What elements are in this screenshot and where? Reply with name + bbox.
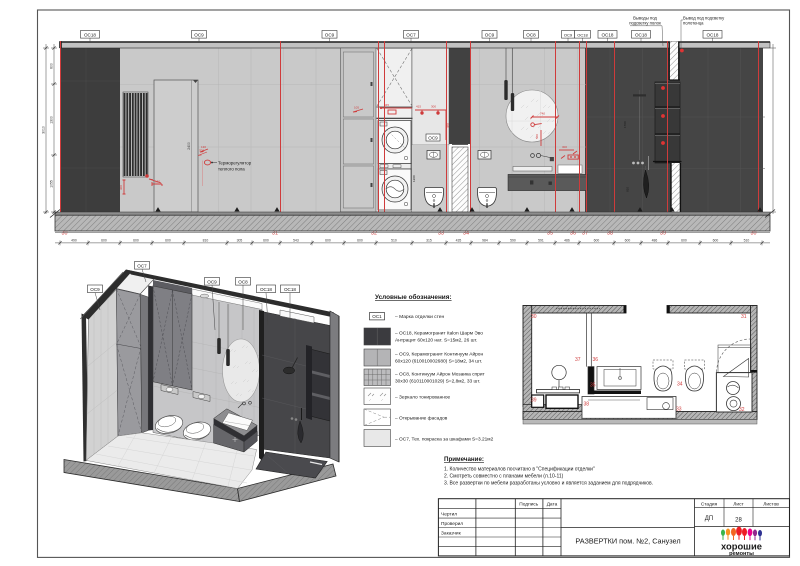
svg-text:300: 300: [431, 105, 436, 109]
svg-text:ОС18: ОС18: [284, 287, 296, 292]
svg-text:39: 39: [531, 398, 537, 404]
svg-text:810: 810: [203, 238, 209, 242]
svg-text:1300: 1300: [50, 116, 54, 124]
svg-text:600: 600: [50, 63, 54, 69]
svg-text:30х30 (610110001029) S=2,8м2,: 30х30 (610110001029) S=2,8м2, 33 шт.: [395, 379, 480, 385]
svg-text:600: 600: [133, 238, 139, 242]
svg-text:105: 105: [354, 106, 359, 110]
svg-text:ОС18: ОС18: [635, 32, 647, 37]
svg-text:ОС7: ОС7: [406, 32, 416, 37]
svg-text:подсветку полок: подсветку полок: [629, 20, 661, 25]
svg-text:ОС18: ОС18: [706, 32, 718, 37]
svg-text:910: 910: [626, 187, 630, 192]
svg-text:Подпись: Подпись: [519, 502, 538, 508]
svg-text:33: 33: [438, 231, 444, 237]
svg-text:300: 300: [562, 145, 567, 149]
svg-text:ОС18: ОС18: [260, 287, 272, 292]
svg-text:ОС9: ОС9: [207, 279, 217, 284]
svg-text:60х120 (610010002680) S=18м2,: 60х120 (610010002680) S=18м2, 34 шт.: [395, 359, 482, 365]
svg-text:ДП: ДП: [705, 516, 713, 522]
svg-text:– Открывание фасадов: – Открывание фасадов: [395, 416, 448, 422]
svg-text:Заказчик: Заказчик: [441, 531, 462, 537]
svg-text:28: 28: [735, 518, 742, 524]
svg-text:– ОС9, Керамогранит Континуум: – ОС9, Керамогранит Континуум Айрон: [395, 351, 483, 358]
svg-text:490: 490: [71, 238, 77, 242]
svg-text:ОС8: ОС8: [526, 32, 536, 37]
svg-text:ОС18: ОС18: [601, 32, 613, 37]
svg-text:31: 31: [741, 314, 747, 320]
svg-text:39: 39: [660, 231, 666, 237]
svg-text:315: 315: [426, 238, 432, 242]
svg-text:31: 31: [272, 231, 278, 237]
svg-text:543: 543: [293, 238, 299, 242]
svg-text:Терморегулятор: Терморегулятор: [218, 160, 252, 165]
svg-text:Лист: Лист: [733, 502, 744, 508]
svg-text:38: 38: [607, 231, 613, 237]
svg-text:3010: 3010: [42, 126, 46, 134]
svg-text:ОС18: ОС18: [84, 32, 96, 37]
svg-text:– Зеркало тонированное: – Зеркало тонированное: [395, 395, 451, 401]
svg-text:1200: 1200: [412, 175, 416, 182]
svg-text:37: 37: [575, 357, 581, 363]
svg-text:35: 35: [547, 231, 553, 237]
svg-text:590: 590: [510, 238, 516, 242]
svg-text:486: 486: [652, 238, 658, 242]
svg-text:600: 600: [357, 238, 363, 242]
svg-text:600: 600: [325, 238, 331, 242]
svg-text:600: 600: [263, 238, 269, 242]
svg-text:32: 32: [739, 407, 745, 413]
svg-text:Примечание:: Примечание:: [444, 456, 484, 463]
svg-text:740: 740: [540, 112, 545, 116]
svg-text:32: 32: [371, 231, 377, 237]
svg-text:130: 130: [201, 145, 206, 149]
svg-text:– ОС8, Континуум Айрон Мозаика: – ОС8, Континуум Айрон Мозаика сприт: [395, 371, 485, 378]
svg-text:– Марка отделки стен: – Марка отделки стен: [395, 314, 445, 320]
svg-text:Условные обозначения:: Условные обозначения:: [375, 293, 452, 301]
svg-text:Антрацит 60х120 нат. S=15м2, 2: Антрацит 60х120 нат. S=15м2, 26 шт.: [395, 338, 477, 344]
svg-text:ОС9: ОС9: [325, 32, 335, 37]
svg-text:2. Смотреть совместно с планам: 2. Смотреть совместно с планами мебели (…: [444, 474, 564, 480]
svg-text:510: 510: [744, 238, 750, 242]
svg-text:36: 36: [593, 357, 599, 363]
svg-text:3. Все развертки по мебели раз: 3. Все развертки по мебели разработаны у…: [444, 481, 653, 487]
svg-text:– ОС18, Керамогранит Italon Ша: – ОС18, Керамогранит Italon Шарм Эво: [395, 331, 483, 337]
svg-text:305: 305: [237, 238, 243, 242]
svg-text:30: 30: [62, 231, 68, 237]
svg-text:теплого пола: теплого пола: [218, 166, 245, 171]
svg-text:34: 34: [463, 231, 469, 237]
svg-text:ремонты: ремонты: [729, 551, 754, 557]
svg-text:1. Количество материалов посчи: 1. Количество материалов посчитано в "Сп…: [444, 467, 595, 473]
svg-text:ОС1: ОС1: [372, 314, 382, 319]
svg-text:37: 37: [582, 231, 588, 237]
svg-text:415: 415: [416, 105, 421, 109]
svg-text:ОС9: ОС9: [485, 32, 495, 37]
svg-text:33: 33: [676, 407, 682, 413]
svg-text:Стадия: Стадия: [701, 502, 718, 508]
svg-text:полотенца: полотенца: [683, 20, 704, 25]
svg-text:150: 150: [155, 180, 160, 184]
svg-text:600: 600: [681, 238, 687, 242]
svg-text:300: 300: [119, 185, 123, 190]
svg-text:ОС9: ОС9: [564, 32, 573, 37]
svg-text:600: 600: [101, 238, 107, 242]
svg-text:ОС7: ОС7: [137, 263, 147, 268]
svg-text:Проверил: Проверил: [441, 521, 463, 527]
svg-text:ОС9: ОС9: [90, 287, 100, 292]
svg-text:1700: 1700: [623, 121, 627, 128]
svg-text:435: 435: [456, 238, 462, 242]
svg-text:984: 984: [482, 238, 488, 242]
svg-text:ОС8: ОС8: [238, 279, 248, 284]
svg-text:Чертил: Чертил: [441, 512, 457, 518]
svg-text:600: 600: [625, 238, 631, 242]
svg-text:36: 36: [570, 231, 576, 237]
svg-text:30: 30: [751, 231, 757, 237]
svg-text:ОС9: ОС9: [194, 32, 204, 37]
svg-text:500: 500: [535, 134, 539, 139]
svg-text:38: 38: [584, 402, 590, 408]
svg-text:591: 591: [538, 238, 544, 242]
svg-text:600: 600: [594, 238, 600, 242]
svg-text:– ОС7, Тех. покраска за шкафам: – ОС7, Тех. покраска за шкафами S=3.21м2: [395, 437, 494, 443]
svg-text:РАЗВЕРТКИ пом. №2, Санузел: РАЗВЕРТКИ пом. №2, Санузел: [575, 537, 680, 546]
svg-text:ОС9: ОС9: [428, 135, 438, 140]
svg-text:Листов: Листов: [763, 502, 779, 508]
svg-text:34: 34: [677, 382, 683, 388]
svg-text:600: 600: [165, 238, 171, 242]
svg-text:486: 486: [564, 238, 570, 242]
svg-text:2400: 2400: [187, 142, 191, 150]
svg-text:ОС18: ОС18: [577, 32, 588, 37]
svg-text:1055: 1055: [50, 180, 54, 188]
svg-text:Дата: Дата: [547, 502, 558, 508]
svg-text:600: 600: [713, 238, 719, 242]
svg-text:510: 510: [391, 238, 397, 242]
svg-text:35: 35: [590, 383, 596, 389]
svg-text:30: 30: [531, 314, 537, 320]
